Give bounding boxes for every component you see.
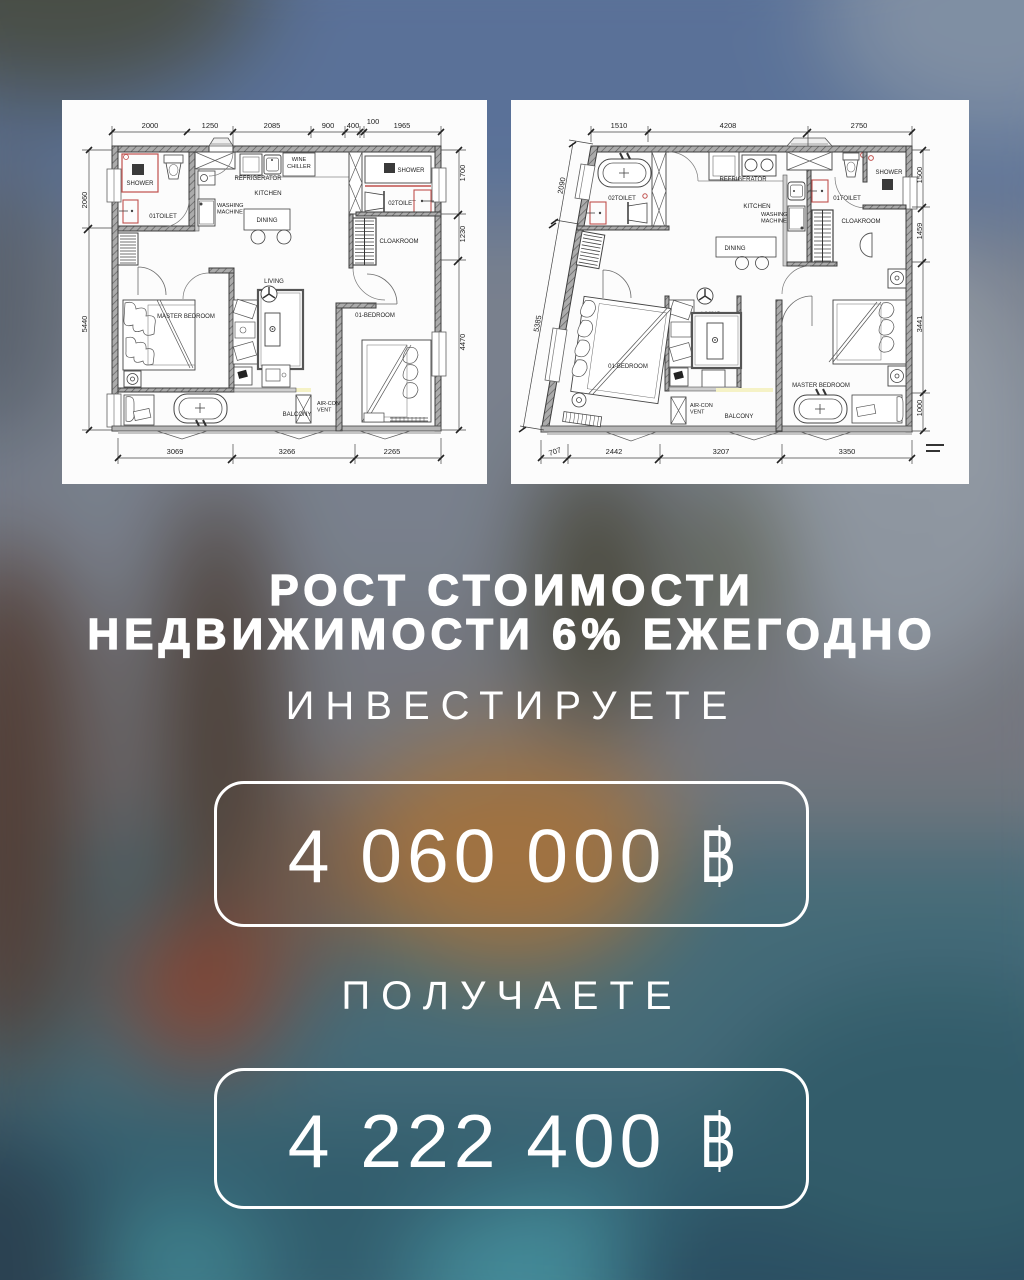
svg-text:KITCHEN: KITCHEN	[254, 190, 281, 197]
svg-text:4470: 4470	[458, 334, 467, 351]
svg-text:100: 100	[367, 117, 380, 126]
svg-text:MACHINE: MACHINE	[217, 210, 243, 216]
svg-text:SHOWER: SHOWER	[127, 181, 155, 187]
svg-text:2085: 2085	[264, 121, 281, 130]
svg-text:SHOWER: SHOWER	[398, 168, 426, 174]
svg-text:CLOAKROOM: CLOAKROOM	[841, 219, 880, 225]
svg-text:1700: 1700	[458, 165, 467, 182]
svg-text:AIR-CON: AIR-CON	[690, 403, 713, 409]
svg-text:1000: 1000	[915, 400, 924, 417]
svg-text:01-BEDROOM: 01-BEDROOM	[355, 313, 395, 319]
svg-text:VENT: VENT	[317, 408, 332, 414]
svg-text:LIVING: LIVING	[264, 279, 284, 285]
svg-text:2090: 2090	[556, 177, 568, 195]
svg-text:1459: 1459	[915, 223, 924, 240]
svg-text:CLOAKROOM: CLOAKROOM	[379, 239, 418, 245]
svg-text:1250: 1250	[202, 121, 219, 130]
svg-text:02TOILET: 02TOILET	[388, 201, 416, 207]
svg-text:01TOILET: 01TOILET	[833, 196, 861, 202]
svg-text:3441: 3441	[915, 316, 924, 333]
svg-text:BALCONY: BALCONY	[725, 414, 754, 420]
svg-text:MACHINE: MACHINE	[761, 219, 787, 225]
svg-text:707: 707	[548, 445, 563, 457]
svg-text:1230: 1230	[458, 226, 467, 243]
svg-text:BALCONY: BALCONY	[283, 412, 312, 418]
svg-text:MASTER BEDROOM: MASTER BEDROOM	[792, 383, 850, 389]
svg-text:3069: 3069	[167, 447, 184, 456]
svg-text:WASHING: WASHING	[217, 203, 244, 209]
svg-text:01-BEDROOM: 01-BEDROOM	[608, 364, 648, 370]
svg-text:400: 400	[347, 121, 360, 130]
svg-text:VENT: VENT	[690, 410, 705, 416]
svg-text:1510: 1510	[611, 121, 628, 130]
svg-text:2265: 2265	[384, 447, 401, 456]
svg-text:1965: 1965	[394, 121, 411, 130]
svg-text:DINING: DINING	[257, 218, 278, 224]
svg-text:5440: 5440	[80, 316, 89, 333]
svg-text:SHOWER: SHOWER	[876, 170, 904, 176]
svg-text:900: 900	[322, 121, 335, 130]
svg-text:DINING: DINING	[725, 246, 746, 252]
svg-text:2442: 2442	[606, 447, 623, 456]
svg-text:02TOILET: 02TOILET	[608, 196, 636, 202]
svg-text:AIR-CON: AIR-CON	[317, 401, 340, 407]
svg-text:3350: 3350	[839, 447, 856, 456]
svg-text:2060: 2060	[80, 192, 89, 209]
svg-text:WINE: WINE	[292, 157, 307, 163]
svg-text:1500: 1500	[915, 167, 924, 184]
svg-text:WASHING: WASHING	[761, 212, 788, 218]
svg-text:5385: 5385	[532, 315, 544, 333]
svg-text:CHILLER: CHILLER	[287, 164, 311, 170]
svg-text:KITCHEN: KITCHEN	[743, 203, 770, 210]
svg-text:3207: 3207	[713, 447, 730, 456]
svg-text:4208: 4208	[720, 121, 737, 130]
svg-text:REFRIGERATOR: REFRIGERATOR	[719, 177, 767, 183]
svg-text:01TOILET: 01TOILET	[149, 214, 177, 220]
svg-text:2000: 2000	[142, 121, 159, 130]
svg-text:2750: 2750	[851, 121, 868, 130]
svg-text:MASTER BEDROOM: MASTER BEDROOM	[157, 314, 215, 320]
svg-text:3266: 3266	[279, 447, 296, 456]
